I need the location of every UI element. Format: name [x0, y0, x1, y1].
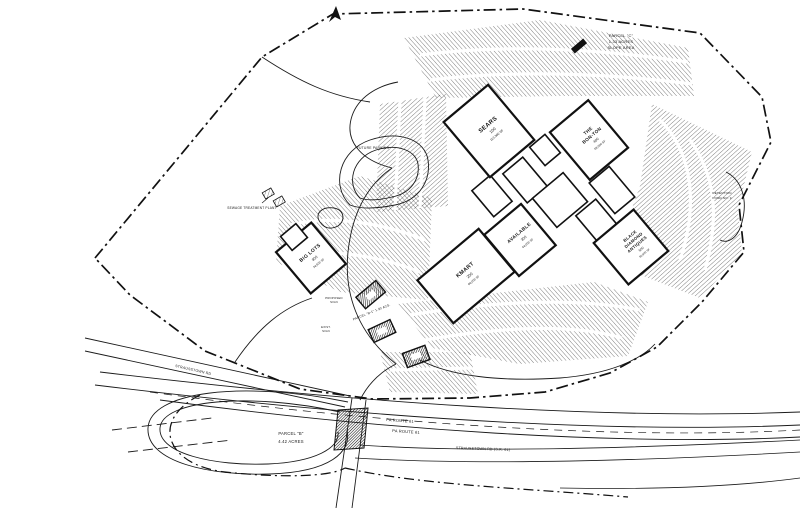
- detention-pond-line1: DETENTION: [712, 191, 731, 195]
- parcel-c-line3: SLOPE AREA: [607, 45, 634, 50]
- parcel-b-line2: 4.42 ACRES: [278, 439, 304, 444]
- parcel-c-line2: 1.33 ACRES: [609, 39, 634, 44]
- parcel-dash-2: [128, 440, 232, 452]
- future-parking-label: FUTURE PARKING: [357, 146, 390, 150]
- bottom-right-road: [560, 478, 800, 489]
- exist-sign-line2: SIGN: [322, 329, 330, 333]
- site-plan-svg: SEARS 100 113,300 SF THE BON-TON 400 58,…: [0, 0, 804, 508]
- parcel-dash-1: [112, 418, 212, 430]
- sewage-leader-line: [262, 198, 268, 203]
- pa-route-61-label-b: PA ROUTE 61: [392, 428, 421, 435]
- proposed-sign-line2: SIGN: [330, 300, 338, 304]
- parcel-b1-label: PARCEL "B-1" 1.30 ACS.: [352, 303, 391, 322]
- boundary-loop-parcel: [170, 395, 345, 476]
- site-plan-canvas: SEARS 100 113,300 SF THE BON-TON 400 58,…: [0, 0, 804, 508]
- ramp-loop-outer: [148, 391, 348, 474]
- northwest-contour: [262, 57, 370, 102]
- strausstown-rd-west-edge1: [85, 338, 350, 396]
- parcel-c-line1: PARCEL "C": [609, 33, 634, 38]
- boundary-south-parcel: [345, 468, 628, 497]
- parking-fields: [276, 20, 752, 394]
- bridge-hatch: [334, 408, 368, 450]
- pa-route-61-line3: [160, 400, 800, 439]
- parcel-b-line1: PARCEL "B": [278, 431, 304, 436]
- strausstown-south-line1: [360, 440, 800, 449]
- concourse-shop-4: [472, 175, 512, 216]
- pa-route-61-label-a: PA ROUTE 61: [386, 417, 415, 424]
- ramp-loop-inner: [160, 401, 340, 464]
- detention-pond-line2: POND NO. 3: [712, 196, 731, 200]
- north-arrow-icon: [329, 6, 341, 22]
- sewage-plant-structures: [262, 188, 285, 207]
- parking-lot-north: [404, 20, 694, 98]
- sewage-structure-1: [262, 188, 274, 199]
- west-entrance-drive: [235, 298, 312, 362]
- sewage-plant-label: SEWAGE TREATMENT PLANT: [227, 206, 276, 210]
- strausstown-south-line2: [355, 452, 800, 462]
- strausstown-rd-south-label: STRAUSSTOWN RD (S.R. 61): [456, 446, 510, 452]
